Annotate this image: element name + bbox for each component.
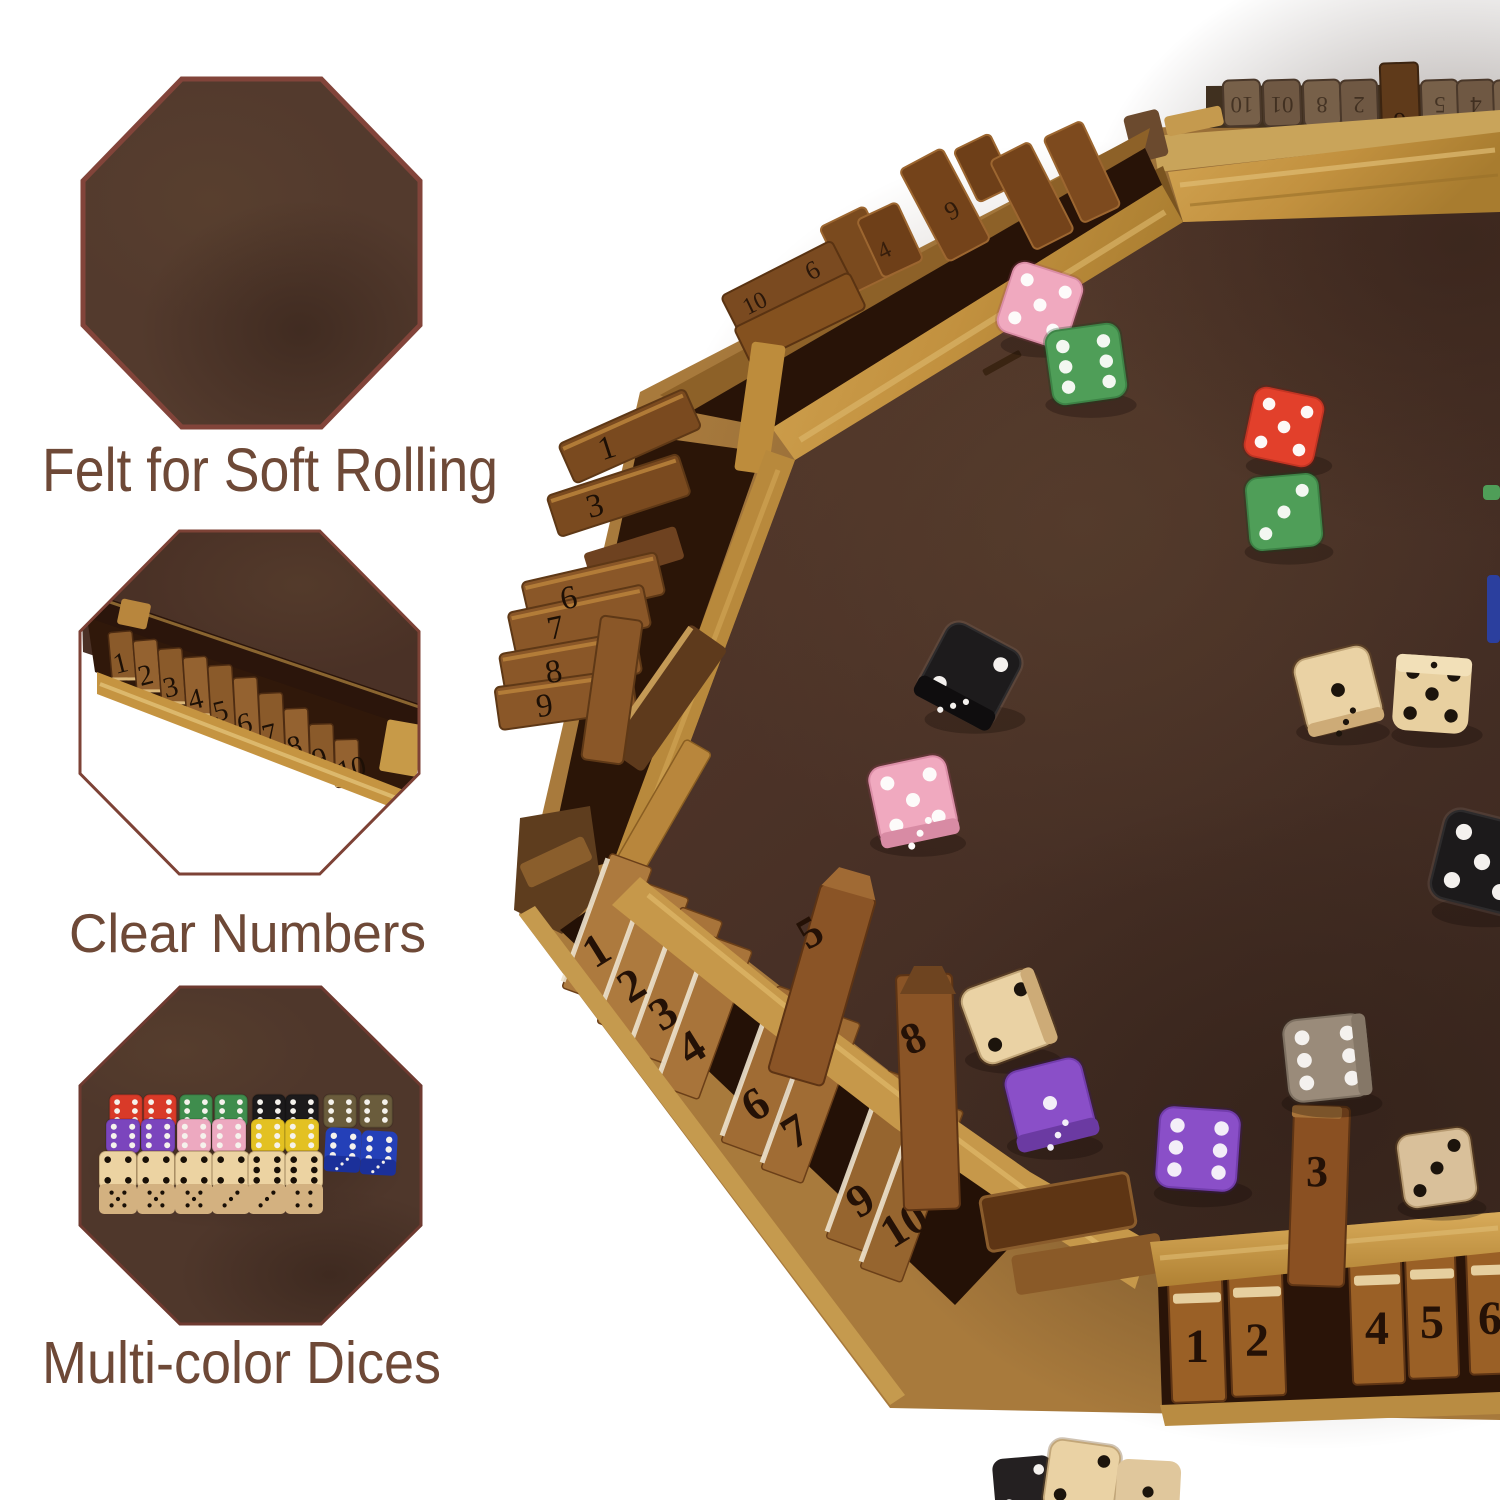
svg-text:01: 01 (1271, 92, 1294, 117)
svg-text:Clear Numbers: Clear Numbers (69, 902, 426, 964)
svg-text:4: 4 (1365, 1302, 1389, 1355)
svg-text:8: 8 (1316, 92, 1328, 117)
svg-text:10: 10 (1231, 92, 1254, 117)
svg-text:3: 3 (1306, 1147, 1328, 1196)
svg-text:Felt for Soft Rolling: Felt for Soft Rolling (42, 436, 498, 504)
svg-text:2: 2 (1245, 1314, 1269, 1367)
svg-text:5: 5 (1434, 92, 1446, 117)
svg-text:Multi-color Dices: Multi-color Dices (42, 1330, 441, 1396)
svg-text:2: 2 (1353, 92, 1365, 117)
svg-text:1: 1 (1185, 1320, 1209, 1373)
svg-text:5: 5 (1420, 1296, 1444, 1349)
svg-text:6: 6 (1478, 1292, 1500, 1345)
